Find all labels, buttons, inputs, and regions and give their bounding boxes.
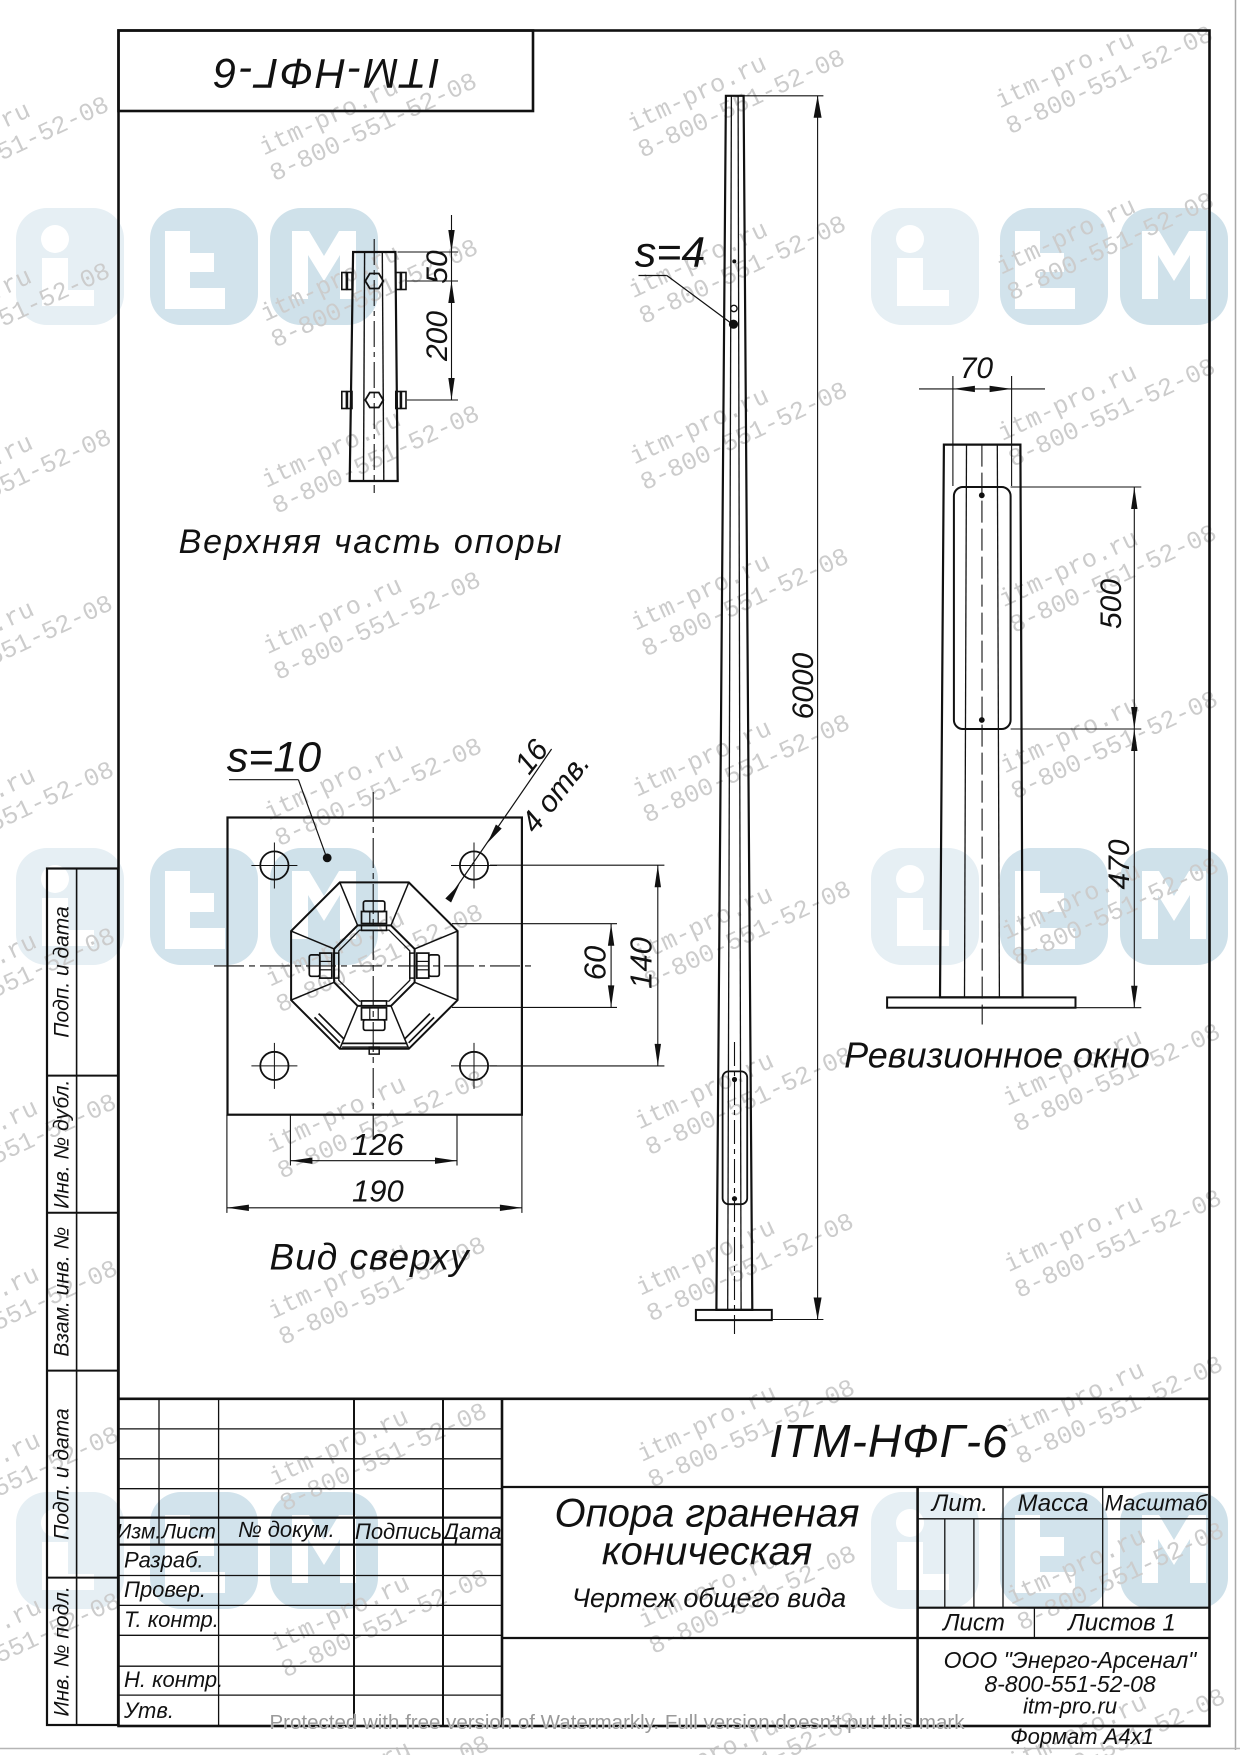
svg-text:Листов 1: Листов 1 <box>1066 1609 1175 1636</box>
svg-text:Вид сверху: Вид сверху <box>270 1236 471 1277</box>
svg-text:Подп. и дата: Подп. и дата <box>51 906 74 1037</box>
svg-text:6000: 6000 <box>787 652 820 719</box>
svg-text:70: 70 <box>960 352 994 385</box>
svg-text:ITM-НФГ-6: ITM-НФГ-6 <box>769 1415 1008 1467</box>
svg-text:140: 140 <box>624 937 659 989</box>
svg-text:500: 500 <box>1095 579 1128 629</box>
svg-text:itm-pro.ru: itm-pro.ru <box>268 1736 416 1755</box>
svg-text:50: 50 <box>421 250 454 284</box>
svg-text:Лист: Лист <box>941 1609 1005 1636</box>
svg-text:Разраб.: Разраб. <box>124 1547 204 1572</box>
svg-text:Масса: Масса <box>1018 1490 1089 1517</box>
svg-text:Верхняя часть опоры: Верхняя часть опоры <box>179 523 564 561</box>
svg-text:Взам. инв. №: Взам. инв. № <box>51 1227 74 1357</box>
svg-text:200: 200 <box>421 311 454 362</box>
svg-text:ITM-НФГ-6: ITM-НФГ-6 <box>212 50 440 97</box>
svg-text:Чертеж общего вида: Чертеж общего вида <box>572 1583 846 1613</box>
svg-text:Инв. № дубл.: Инв. № дубл. <box>51 1080 74 1209</box>
svg-text:№ докум.: № докум. <box>238 1517 335 1542</box>
svg-text:190: 190 <box>352 1173 404 1208</box>
svg-text:470: 470 <box>1103 839 1136 889</box>
svg-text:Подпись: Подпись <box>355 1519 442 1544</box>
svg-text:Дата: Дата <box>440 1519 501 1544</box>
svg-text:Ревизионное окно: Ревизионное окно <box>844 1035 1150 1076</box>
svg-text:s=10: s=10 <box>227 733 322 781</box>
svg-text:Н. контр.: Н. контр. <box>124 1667 223 1692</box>
svg-text:Т. контр.: Т. контр. <box>124 1607 219 1632</box>
svg-text:ООО "Энерго-Арсенал": ООО "Энерго-Арсенал" <box>944 1647 1199 1673</box>
svg-text:126: 126 <box>352 1127 404 1162</box>
svg-text:Масштаб: Масштаб <box>1105 1490 1209 1515</box>
svg-text:Провер.: Провер. <box>124 1577 206 1602</box>
svg-text:Лист: Лист <box>160 1521 216 1544</box>
svg-text:s=4: s=4 <box>635 228 706 276</box>
svg-text:коническая: коническая <box>602 1530 812 1574</box>
svg-text:Подп. и дата: Подп. и дата <box>51 1408 74 1539</box>
svg-text:Лит.: Лит. <box>930 1490 988 1517</box>
svg-text:Protected with free version of: Protected with free version of Watermark… <box>270 1711 966 1734</box>
svg-text:Утв.: Утв. <box>123 1698 174 1723</box>
svg-text:Формат A4x1: Формат A4x1 <box>1010 1724 1154 1749</box>
svg-text:itm-pro.ru: itm-pro.ru <box>1023 1693 1117 1718</box>
svg-text:60: 60 <box>578 946 613 980</box>
svg-text:Инв. № подл.: Инв. № подл. <box>51 1586 74 1716</box>
svg-text:Изм.: Изм. <box>116 1521 161 1544</box>
svg-text:16: 16 <box>508 733 555 780</box>
